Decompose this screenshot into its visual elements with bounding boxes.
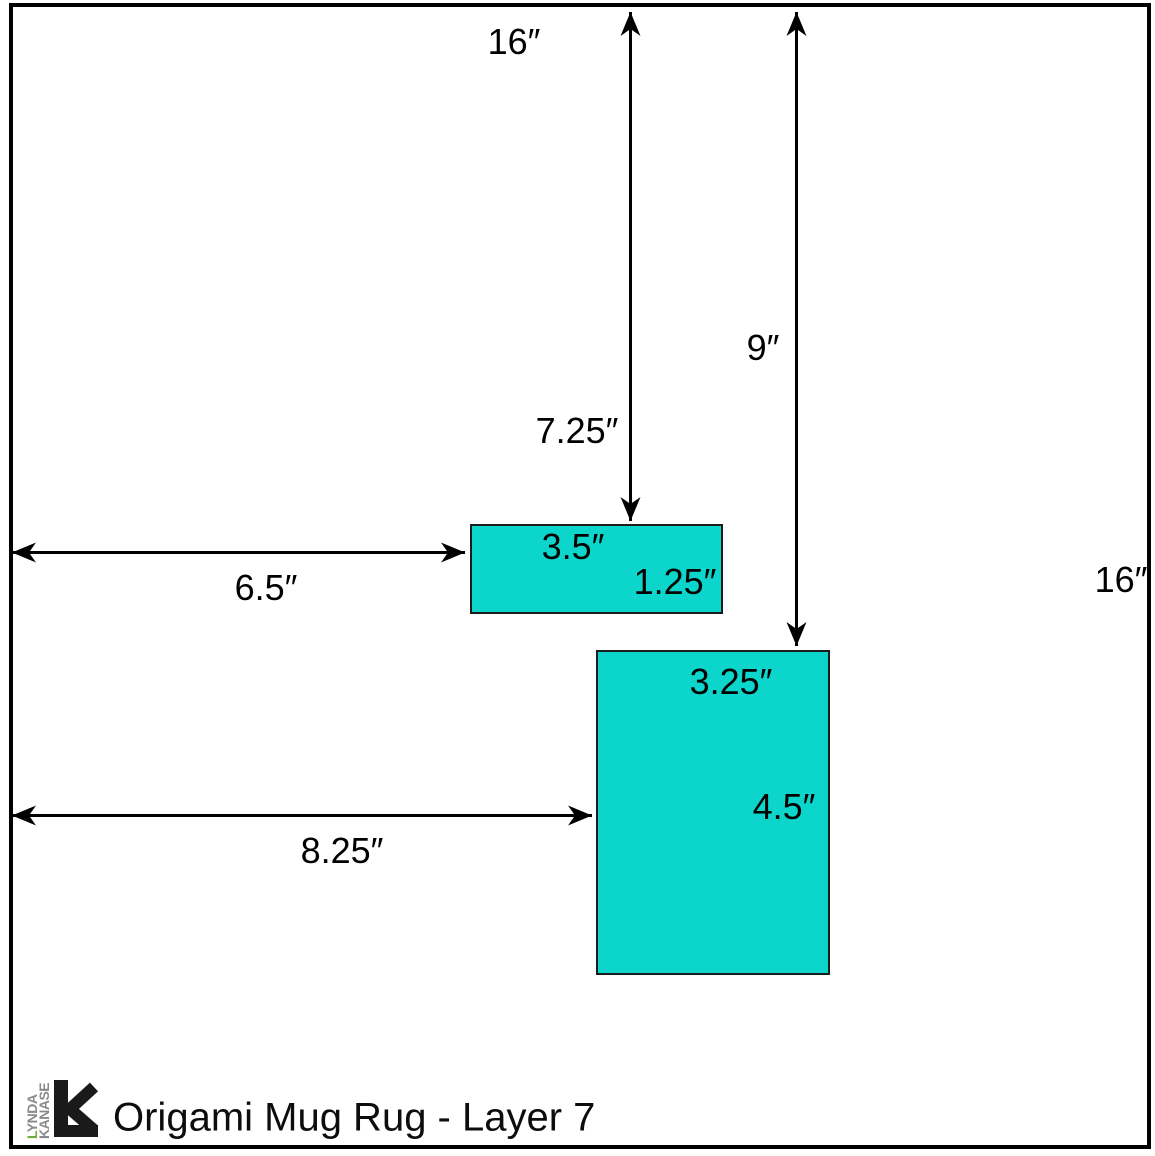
logo-text-kanase: KANASE (38, 1083, 50, 1139)
dimension-label-square-width: 16″ (488, 24, 541, 60)
diagram-canvas: 16″ 7.25″ 9″ 16″ 3.5″ 1.25″ 6.5″ 3.25″ 4… (0, 0, 1155, 1156)
logo-k-icon (54, 1080, 99, 1137)
dimension-label-9: 9″ (747, 330, 780, 366)
dimension-label-piece2-width: 3.25″ (690, 664, 773, 700)
diagram-title: Origami Mug Rug - Layer 7 (113, 1096, 595, 1141)
dimension-label-piece2-height: 4.5″ (753, 789, 816, 825)
dimension-label-8-25: 8.25″ (301, 833, 384, 869)
dimension-label-6-5: 6.5″ (235, 570, 298, 606)
dimension-label-piece1-height: 1.25″ (634, 564, 717, 600)
dimension-label-square-height: 16″ (1095, 562, 1148, 598)
dimension-label-7-25: 7.25″ (536, 413, 619, 449)
dimension-label-piece1-width: 3.5″ (542, 529, 605, 565)
